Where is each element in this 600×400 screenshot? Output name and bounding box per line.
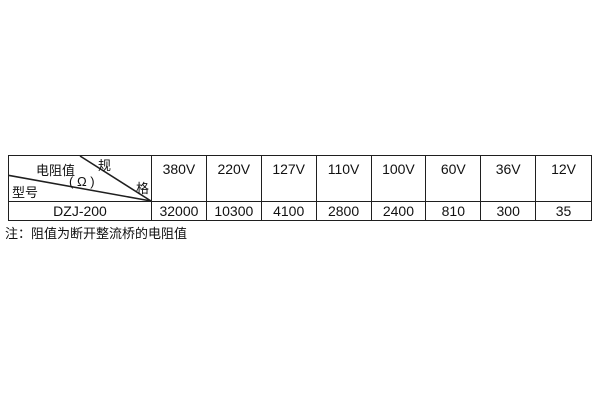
model-cell: DZJ-200 xyxy=(9,202,152,220)
value-cell-12v: 35 xyxy=(536,202,591,220)
value-cell-60v: 810 xyxy=(426,202,481,220)
corner-label-resistance-unit: ( Ω ) xyxy=(69,175,95,188)
value-cell-380v: 32000 xyxy=(152,202,207,220)
column-header-380v: 380V xyxy=(152,156,207,202)
column-header-127v: 127V xyxy=(262,156,317,202)
corner-header-cell: 规 电阻值 ( Ω ) 格 型号 xyxy=(9,156,152,202)
spec-table: 规 电阻值 ( Ω ) 格 型号 380V 220V 127V 110V 100… xyxy=(8,155,592,221)
corner-label-spec-bottom: 格 xyxy=(136,182,149,195)
column-header-12v: 12V xyxy=(536,156,591,202)
footnote: 注：阻值为断开整流桥的电阻值 xyxy=(5,227,187,241)
page: 规 电阻值 ( Ω ) 格 型号 380V 220V 127V 110V 100… xyxy=(0,0,600,400)
column-header-100v: 100V xyxy=(372,156,427,202)
column-header-60v: 60V xyxy=(426,156,481,202)
corner-label-spec-top: 规 xyxy=(98,159,111,172)
column-header-110v: 110V xyxy=(317,156,372,202)
value-cell-110v: 2800 xyxy=(317,202,372,220)
value-cell-127v: 4100 xyxy=(262,202,317,220)
value-cell-100v: 2400 xyxy=(372,202,427,220)
value-cell-36v: 300 xyxy=(481,202,536,220)
column-header-36v: 36V xyxy=(481,156,536,202)
column-header-220v: 220V xyxy=(207,156,262,202)
corner-label-model: 型号 xyxy=(12,186,38,199)
value-cell-220v: 10300 xyxy=(207,202,262,220)
